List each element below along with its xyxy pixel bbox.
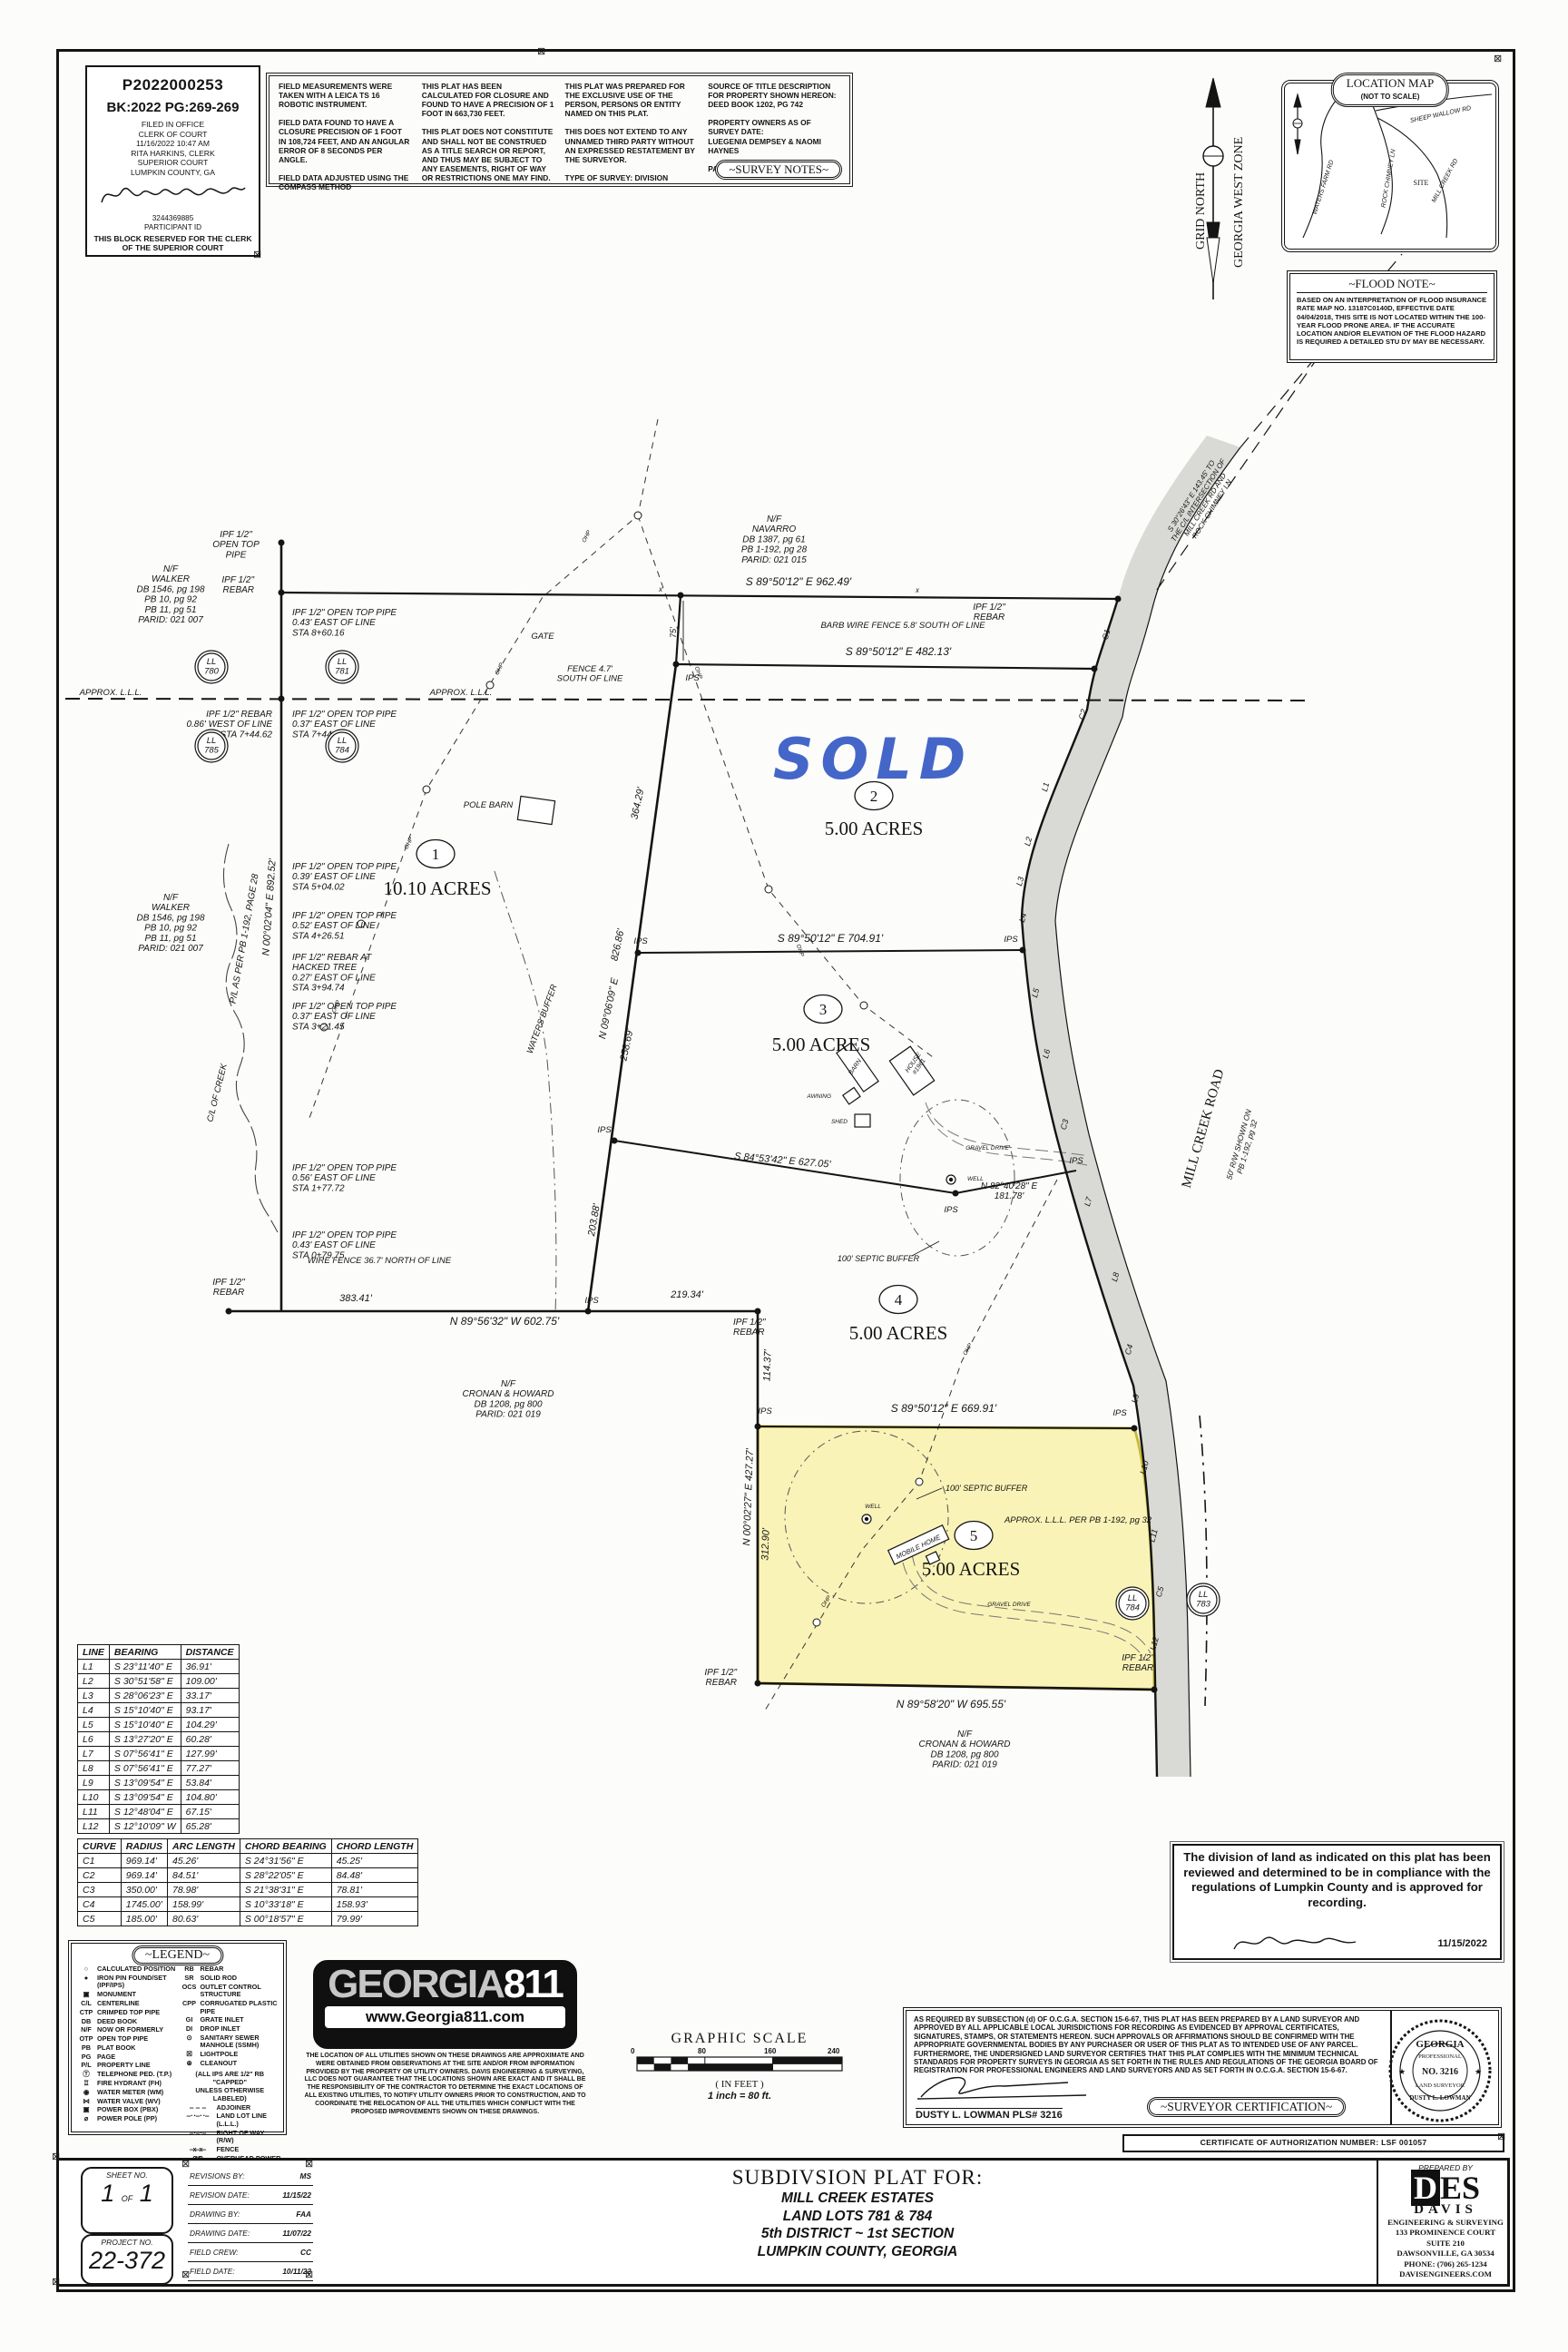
legend-item: OTPOPEN TOP PIPE [75, 2035, 179, 2043]
plat-label: N 89°56'32" W 602.75' [450, 1315, 560, 1328]
table-cell: L2 [78, 1674, 110, 1689]
lot-acreage: 5.00 ACRES [849, 1322, 948, 1344]
legend-label: ADJOINER [217, 2104, 251, 2112]
plat-label: IPF 1/2" OPEN TOP PIPE0.43' EAST OF LINE… [292, 608, 397, 638]
book-page: BK:2022 PG:269-269 [87, 100, 259, 115]
legend-label: GRATE INLET [201, 2016, 244, 2024]
plat-label: IPF 1/2" OPEN TOP PIPE0.56' EAST OF LINE… [292, 1163, 397, 1193]
plat-label: C/L OF CREEK [205, 1063, 230, 1123]
table-cell: 84.48' [331, 1868, 418, 1883]
locmap-road-label: ROCK CHIMNEY LN [1380, 148, 1396, 208]
plat-label: N 00°02'04" E 892.52' [260, 857, 279, 956]
table-cell: 127.99' [181, 1747, 239, 1761]
table-row: L1S 23°11'40" E36.91' [78, 1660, 240, 1674]
surveyor-signature [914, 2072, 1095, 2104]
plat-label: IPF 1/2"REBAR [733, 1318, 766, 1338]
legend-symbol: GI [179, 2016, 201, 2024]
legend-symbol: ⊙ [179, 2034, 201, 2050]
legend-item: —·—·—RIGHT OF WAY (R/W) [179, 2130, 282, 2145]
lot-number: 2 [870, 788, 878, 805]
plat-label: GATE [531, 632, 554, 642]
plat-label: FENCE 4.7'SOUTH OF LINE [557, 664, 623, 684]
filed-info: FILED IN OFFICE CLERK OF COURT 11/16/202… [87, 120, 259, 178]
locmap-road-label: MILL CREEK RD [1431, 158, 1459, 204]
table-cell: 80.63' [168, 1912, 240, 1926]
revision-label: FIELD DATE: [190, 2267, 235, 2276]
revision-row: REVISIONS BY:MS [188, 2167, 313, 2186]
legend-label: OUTLET CONTROL STRUCTURE [201, 1984, 261, 1999]
locmap-road-label: SHEEP WALLOW RD [1409, 105, 1471, 124]
legend-item: ◉WATER METER (WM) [75, 2089, 179, 2097]
legend-label: DROP INLET [201, 2025, 240, 2033]
legend-item: —··—··—LAND LOT LINE (L.L.L.) [179, 2112, 282, 2128]
plat-label: WELL [967, 1176, 984, 1182]
table-row: L2S 30°51'58" E109.00' [78, 1674, 240, 1689]
legend-symbol: ○ [75, 1965, 97, 1974]
table-cell: C5 [78, 1912, 122, 1926]
plat-label: N 89°58'20" W 695.55' [897, 1698, 1006, 1710]
participant-id: 3244369885 PARTICIPANT ID [87, 214, 259, 232]
plat-label: IPF 1/2"REBAR [704, 1668, 737, 1688]
title-block: SHEET NO. 1 OF 1 PROJECT NO. 22-372 REVI… [56, 2158, 1510, 2287]
legend-symbol: N/F [75, 2026, 97, 2034]
legend-note: (ALL IPS ARE 1/2" RB "CAPPED" UNLESS OTH… [179, 2070, 282, 2102]
surveyor-seal: ​ GEORGIA PROFESSIONAL NO. 3216 LAND SUR… [1386, 2016, 1494, 2125]
legend-symbol: ♖ [75, 2080, 97, 2088]
legend-left-column: ○CALCULATED POSITION●IRON PIN FOUND/SET … [75, 1965, 179, 2130]
firm-name: DAVIS [1378, 2203, 1513, 2217]
plat-label: N 82°40'28" E181.78' [981, 1181, 1038, 1201]
revision-label: DRAWING BY: [190, 2210, 240, 2219]
table-cell: 969.14' [121, 1854, 167, 1868]
plat-label: N 00°02'27" E 427.27' [741, 1447, 756, 1546]
legend-symbol: ⋈ [75, 2098, 97, 2106]
table-cell: 158.93' [331, 1897, 418, 1912]
sheet-total: 1 [140, 2180, 153, 2207]
plat-label: S 89°50'12" E 704.91' [778, 932, 884, 945]
plat-label: IPF 1/2"REBAR [973, 603, 1005, 622]
plat-label: N/FNAVARRODB 1387, pg 61PB 1-192, pg 28P… [741, 514, 808, 565]
legend-item: ▣MONUMENT [75, 1991, 179, 1999]
reserved-note: THIS BLOCK RESERVED FOR THE CLERK OF THE… [87, 234, 259, 252]
plat-label: APPROX. L.L.L. [429, 688, 493, 698]
graphic-scale: GRAPHIC SCALE 080160240 ( IN FEET ) 1 in… [626, 2031, 853, 2102]
svg-text:GEORGIA: GEORGIA [1416, 2039, 1464, 2050]
plat-title-line-3: 5th DISTRICT ~ 1st SECTION [567, 2225, 1148, 2243]
table-cell: L6 [78, 1732, 110, 1747]
legend-label: LAND LOT LINE (L.L.L.) [217, 2112, 282, 2128]
table-cell: L1 [78, 1660, 110, 1674]
table-cell: 65.28' [181, 1819, 239, 1834]
table-header: CHORD LENGTH [331, 1839, 418, 1854]
survey-notes-col-2: THIS PLAT HAS BEEN CALCULATED FOR CLOSUR… [416, 82, 560, 178]
plat-label: x [915, 586, 920, 594]
firm-address-line: PHONE: (706) 265-1234 [1378, 2259, 1513, 2269]
georgia811-number: 811 [504, 1962, 563, 2006]
approval-text: The division of land as indicated on thi… [1181, 1850, 1493, 1910]
plat-label: WIRE FENCE 36.7' NORTH OF LINE [308, 1256, 452, 1266]
revision-row: DRAWING DATE:11/07/22 [188, 2224, 313, 2243]
plat-label: IPS [1112, 1408, 1127, 1418]
plat-label: OHP [403, 836, 415, 850]
plat-label: 114.37' [761, 1348, 773, 1381]
graphic-scale-title: GRAPHIC SCALE [626, 2031, 853, 2047]
table-cell: 78.98' [168, 1883, 240, 1897]
table-cell: 185.00' [121, 1912, 167, 1926]
revision-row: FIELD DATE:10/11/22 [188, 2262, 313, 2281]
locmap-road-label: WATERS FARM RD [1312, 160, 1336, 216]
legend-label: WATER VALVE (WV) [97, 2098, 161, 2106]
firm-address-line: DAVISENGINEERS.COM [1378, 2269, 1513, 2279]
legend-item: ⊙SANITARY SEWER MANHOLE (SSMH) [179, 2034, 282, 2050]
clerk-signature [96, 179, 250, 210]
lot-number: 4 [895, 1291, 903, 1308]
plat-label: IPS [584, 1296, 599, 1306]
table-cell: C2 [78, 1868, 122, 1883]
registration-mark: ⊠ [1497, 2132, 1505, 2142]
table-row: C3350.00'78.98'S 21°38'31" E78.81' [78, 1883, 418, 1897]
plat-label: N/FWALKERDB 1546, pg 198PB 10, pg 92PB 1… [136, 564, 204, 625]
sheet-number-box: SHEET NO. 1 OF 1 [81, 2167, 173, 2234]
table-row: L10S 13°09'54" E104.80' [78, 1790, 240, 1805]
flood-note-title: ~FLOOD NOTE~ [1297, 277, 1487, 293]
plat-label: IPS [758, 1406, 772, 1416]
plat-label: IPS [1004, 935, 1018, 945]
legend-symbol: ▣ [75, 1991, 97, 1999]
plat-label: WELL [865, 1504, 881, 1510]
registration-mark: ⊠ [537, 47, 545, 57]
table-cell: S 10°33'18" E [240, 1897, 331, 1912]
table-header: BEARING [109, 1645, 181, 1660]
registration-mark: ⊠ [305, 2160, 313, 2170]
firm-address-line: ENGINEERING & SURVEYING [1378, 2218, 1513, 2228]
svg-text:PROFESSIONAL: PROFESSIONAL [1418, 2053, 1462, 2060]
survey-notes-stamp: ~SURVEY NOTES~ [715, 160, 842, 180]
revision-label: REVISION DATE: [190, 2190, 250, 2200]
legend-item: ♖FIRE HYDRANT (FH) [75, 2080, 179, 2088]
legend-symbol: PG [75, 2053, 97, 2062]
plat-label: N/FCRONAN & HOWARDDB 1208, pg 800PARID: … [463, 1379, 554, 1420]
table-cell: S 07°56'41" E [109, 1761, 181, 1776]
table-row: C1969.14'45.26'S 24°31'56" E45.25' [78, 1854, 418, 1868]
legend-title: ~LEGEND~ [132, 1945, 223, 1965]
legend-label: WATER METER (WM) [97, 2089, 163, 2097]
registration-mark: ⊠ [181, 2270, 190, 2280]
table-cell: 158.99' [168, 1897, 240, 1912]
legend-symbol: DI [179, 2025, 201, 2033]
table-cell: 77.27' [181, 1761, 239, 1776]
plat-label: POLE BARN [464, 800, 514, 810]
legend-item: RBREBAR [179, 1965, 282, 1974]
legend-item: ○CALCULATED POSITION [75, 1965, 179, 1974]
location-map-title-text: LOCATION MAP [1347, 76, 1434, 90]
table-cell: L9 [78, 1776, 110, 1790]
table-cell: S 13°09'54" E [109, 1776, 181, 1790]
table-cell: 60.28' [181, 1732, 239, 1747]
legend-item: ⊛CLEANOUT [179, 2060, 282, 2068]
legend-item: DBDEED BOOK [75, 2018, 179, 2026]
legend-label: REBAR [201, 1965, 224, 1974]
table-cell: S 23°11'40" E [109, 1660, 181, 1674]
svg-text:★: ★ [1398, 2067, 1406, 2076]
legend-symbol: ⌀ [75, 2115, 97, 2123]
table-row: C41745.00'158.99'S 10°33'18" E158.93' [78, 1897, 418, 1912]
table-cell: L4 [78, 1703, 110, 1718]
revision-row: FIELD CREW:CC [188, 2243, 313, 2262]
plat-label: IPF 1/2"OPEN TOPPIPE [212, 530, 260, 560]
grid-north-label: GRID NORTH [1194, 104, 1209, 286]
road-segment-tag: L2 [1023, 836, 1034, 847]
table-row: L3S 28°06'23" E33.17' [78, 1689, 240, 1703]
legend-label: PROPERTY LINE [97, 2062, 151, 2070]
table-row: L8S 07°56'41" E77.27' [78, 1761, 240, 1776]
registration-mark: ⊠ [1494, 54, 1502, 64]
lot-acreage: 5.00 ACRES [825, 818, 924, 839]
plat-label: IPF 1/2"REBAR [1122, 1653, 1154, 1673]
survey-notes-col-1: FIELD MEASUREMENTS WERE TAKEN WITH A LEI… [273, 82, 416, 178]
scale-tick: 240 [828, 2047, 839, 2055]
document-number: P2022000253 [87, 76, 259, 94]
legend-item: GIGRATE INLET [179, 2016, 282, 2024]
plat-sheet: N/FNAVARRODB 1387, pg 61PB 1-192, pg 28P… [0, 0, 1568, 2352]
location-map-subtitle: (NOT TO SCALE) [1361, 93, 1420, 101]
legend-item: ⌀POWER POLE (PP) [75, 2115, 179, 2123]
plat-label: GRAVEL DRIVE [987, 1602, 1031, 1608]
lot-acreage: 5.00 ACRES [772, 1034, 871, 1055]
scale-tick: 160 [764, 2047, 776, 2055]
table-row: L6S 13°27'20" E60.28' [78, 1732, 240, 1747]
plat-label: APPROX. L.L.L. [79, 688, 142, 698]
plat-label: P/L AS PER PB 1-192, PAGE 28 [229, 873, 261, 1004]
legend-label: NOW OR FORMERLY [97, 2026, 163, 2034]
plat-label: 258.69' [618, 1027, 636, 1063]
table-cell: 45.26' [168, 1854, 240, 1868]
plat-label: 100' SEPTIC BUFFER [838, 1254, 920, 1263]
road-segment-tag: L3 [1014, 876, 1025, 887]
table-cell: S 28°06'23" E [109, 1689, 181, 1703]
project-number: 22-372 [83, 2247, 171, 2274]
location-map-title: LOCATION MAP (NOT TO SCALE) [1331, 73, 1449, 107]
legend-item: CPPCORRUGATED PLASTIC PIPE [179, 2000, 282, 2015]
legend-label: IRON PIN FOUND/SET (IPF/IPS) [97, 1975, 167, 1990]
registration-mark: ⊠ [305, 2270, 313, 2280]
plat-label: N 09°06'09" E [597, 976, 621, 1040]
legend-symbol: SR [179, 1975, 201, 1983]
table-row: L4S 15°10'40" E93.17' [78, 1703, 240, 1718]
table-cell: C4 [78, 1897, 122, 1912]
plat-label: 364.29' [629, 786, 646, 820]
locmap-road-label: SITE [1414, 179, 1429, 187]
legend-item: C/LCENTERLINE [75, 2000, 179, 2008]
legend-item: PBPLAT BOOK [75, 2044, 179, 2053]
plat-label: S 89°50'12" E 482.13' [846, 645, 952, 658]
legend-symbol: P/L [75, 2062, 97, 2070]
table-row: L7S 07°56'41" E127.99' [78, 1747, 240, 1761]
revision-row: DRAWING BY:FAA [188, 2205, 313, 2224]
table-cell: L10 [78, 1790, 110, 1805]
legend-item: — — —ADJOINER [179, 2104, 282, 2112]
lot-number: 3 [819, 1001, 828, 1018]
table-cell: L7 [78, 1747, 110, 1761]
table-cell: L12 [78, 1819, 110, 1834]
legend-item: ⋈WATER VALVE (WV) [75, 2098, 179, 2106]
table-header: DISTANCE [181, 1645, 239, 1660]
legend-item: OCSOUTLET CONTROL STRUCTURE [179, 1984, 282, 1999]
revision-value: CC [300, 2248, 311, 2257]
legend-symbol: PB [75, 2044, 97, 2053]
legend-label: SOLID ROD [201, 1975, 238, 1983]
firm-logo-es: ES [1440, 2170, 1480, 2206]
table-cell: C3 [78, 1883, 122, 1897]
sheet-number-label: SHEET NO. [83, 2171, 171, 2180]
pole-barn [517, 796, 554, 824]
legend-label: CLEANOUT [201, 2060, 238, 2068]
registration-mark: ⊠ [253, 250, 261, 260]
legend-symbol: —x—x— [179, 2146, 217, 2154]
locmap-north-arrow [1293, 94, 1302, 154]
revisions-table: REVISIONS BY:MSREVISION DATE:11/15/22DRA… [188, 2167, 313, 2281]
plat-label: S 89°50'12" E 669.91' [891, 1402, 997, 1415]
prepared-by-block: PREPARED BY DES DAVIS ENGINEERING & SURV… [1377, 2161, 1513, 2284]
table-cell: S 12°48'04" E [109, 1805, 181, 1819]
plat-label: N/FWALKERDB 1546, pg 198PB 10, pg 92PB 1… [136, 893, 204, 954]
legend-symbol: CTP [75, 2009, 97, 2017]
revision-row: REVISION DATE:11/15/22 [188, 2186, 313, 2205]
table-header: RADIUS [121, 1839, 167, 1854]
legend-item: P/LPROPERTY LINE [75, 2062, 179, 2070]
legend-right-column: RBREBARSRSOLID RODOCSOUTLET CONTROL STRU… [179, 1965, 282, 2130]
approval-signature [1229, 1929, 1365, 1956]
plat-label: 219.34' [670, 1289, 704, 1300]
flood-note-text: BASED ON AN INTERPRETATION OF FLOOD INSU… [1297, 296, 1487, 347]
legend-label: OPEN TOP PIPE [97, 2035, 148, 2043]
surveyor-name: DUSTY L. LOWMAN PLS# 3216 [916, 2108, 1063, 2121]
revision-value: MS [300, 2171, 311, 2180]
legend-label: PAGE [97, 2053, 115, 2062]
plat-label: AWNING [806, 1093, 831, 1100]
legend-symbol: ◉ [75, 2089, 97, 2097]
table-cell: S 15°10'40" E [109, 1718, 181, 1732]
road-segment-tag: L1 [1040, 781, 1051, 792]
table-cell: 67.15' [181, 1805, 239, 1819]
surveyor-certification: AS REQUIRED BY SUBSECTION (d) OF O.C.G.A… [903, 2007, 1502, 2128]
project-number-box: PROJECT NO. 22-372 [81, 2234, 173, 2285]
revision-value: 11/07/22 [282, 2229, 311, 2238]
georgia-west-zone-label: GEORGIA WEST ZONE [1232, 86, 1247, 304]
firm-address-line: 133 PROMINENCE COURT [1378, 2228, 1513, 2238]
table-cell: L11 [78, 1805, 110, 1819]
septic-buffer-lot3 [900, 1100, 1014, 1256]
sheet-number: 1 [101, 2180, 114, 2207]
table-row: L5S 15°10'40" E104.29' [78, 1718, 240, 1732]
plat-label: OHP [494, 661, 505, 676]
table-cell: S 24°31'56" E [240, 1854, 331, 1868]
legend-symbol: ● [75, 1975, 97, 1990]
table-header: CURVE [78, 1839, 122, 1854]
plat-label: 383.41' [339, 1293, 373, 1304]
table-cell: 104.29' [181, 1718, 239, 1732]
plat-title: SUBDIVSION PLAT FOR: MILL CREEK ESTATES … [567, 2166, 1148, 2260]
legend-symbol: —·—·— [179, 2130, 217, 2145]
table-header: LINE [78, 1645, 110, 1660]
plat-label: N/FCRONAN & HOWARDDB 1208, pg 800PARID: … [919, 1730, 1011, 1770]
table-cell: L5 [78, 1718, 110, 1732]
table-cell: S 13°09'54" E [109, 1790, 181, 1805]
plat-label: BARB WIRE FENCE 5.8' SOUTH OF LINE [820, 621, 985, 631]
legend-symbol: Ⓣ [75, 2071, 97, 2079]
legend-symbol: C/L [75, 2000, 97, 2008]
plat-label: IPF 1/2" OPEN TOP PIPE0.52' EAST OF LINE… [292, 911, 397, 941]
legend-label: PLAT BOOK [97, 2044, 135, 2053]
revision-label: REVISIONS BY: [190, 2171, 245, 2180]
survey-notes-col-3: THIS PLAT WAS PREPARED FOR THE EXCLUSIVE… [560, 82, 703, 178]
plat-label: IPS [633, 936, 648, 946]
table-cell: S 21°38'31" E [240, 1883, 331, 1897]
legend-label: DEED BOOK [97, 2018, 137, 2026]
georgia811-logo: GEORGIA811 www.Georgia811.com [313, 1960, 577, 2049]
plat-label: IPS [597, 1125, 612, 1135]
svg-text:DUSTY L. LOWMAN: DUSTY L. LOWMAN [1409, 2094, 1470, 2102]
table-cell: 1745.00' [121, 1897, 167, 1912]
legend-symbol: — — — [179, 2104, 217, 2112]
shed [855, 1114, 870, 1127]
table-header: CHORD BEARING [240, 1839, 331, 1854]
table-cell: S 15°10'40" E [109, 1703, 181, 1718]
legend-label: CORRUGATED PLASTIC PIPE [201, 2000, 278, 2015]
table-cell: S 00°18'57" E [240, 1912, 331, 1926]
firm-address-line: SUITE 210 [1378, 2239, 1513, 2249]
table-cell: S 12°10'09" W [109, 1819, 181, 1834]
legend-item: DIDROP INLET [179, 2025, 282, 2033]
location-map-canvas: WATERS FARM RDROCK CHIMNEY LNSHEEP WALLO… [1285, 83, 1495, 249]
table-cell: S 30°51'58" E [109, 1674, 181, 1689]
lot-number: 1 [432, 846, 440, 863]
awning [843, 1087, 860, 1103]
lot-acreage: 5.00 ACRES [922, 1558, 1021, 1580]
legend-item: CTPCRIMPED TOP PIPE [75, 2009, 179, 2017]
legend-item: N/FNOW OR FORMERLY [75, 2026, 179, 2034]
legend-symbol: OCS [179, 1984, 201, 1999]
legend-symbol: ▣ [75, 2106, 97, 2114]
legend-item: ●IRON PIN FOUND/SET (IPF/IPS) [75, 1975, 179, 1990]
graphic-scale-units: ( IN FEET ) [626, 2079, 853, 2090]
table-cell: 53.84' [181, 1776, 239, 1790]
table-row: L9S 13°09'54" E53.84' [78, 1776, 240, 1790]
legend-label: RIGHT OF WAY (R/W) [217, 2130, 282, 2145]
plat-label: IPS [1069, 1156, 1083, 1166]
plat-label: APPROX. L.L.L. PER PB 1-192, pg 32 [1004, 1515, 1152, 1525]
table-cell: 93.17' [181, 1703, 239, 1718]
plat-label: 100' SEPTIC BUFFER [946, 1484, 1028, 1493]
land-lot-line-2 [1200, 1416, 1207, 1706]
legend-label: SANITARY SEWER MANHOLE (SSMH) [201, 2034, 260, 2050]
legend-label: POWER BOX (PBX) [97, 2106, 158, 2114]
legend-symbol: —··—··— [179, 2112, 217, 2128]
flood-note: ~FLOOD NOTE~ BASED ON AN INTERPRETATION … [1287, 270, 1497, 363]
legend-item: ▣POWER BOX (PBX) [75, 2106, 179, 2114]
lot-number: 5 [970, 1527, 978, 1544]
table-cell: C1 [78, 1854, 122, 1868]
curve-table: CURVERADIUSARC LENGTHCHORD BEARINGCHORD … [77, 1838, 418, 1926]
table-cell: S 07°56'41" E [109, 1747, 181, 1761]
firm-address-line: DAWSONVILLE, GA 30534 [1378, 2249, 1513, 2259]
plat-label: IPF 1/2" OPEN TOP PIPE0.39' EAST OF LINE… [292, 862, 397, 892]
legend-label: CRIMPED TOP PIPE [97, 2009, 160, 2017]
table-cell: S 13°27'20" E [109, 1732, 181, 1747]
plat-title-line-2: LAND LOTS 781 & 784 [567, 2208, 1148, 2226]
project-number-label: PROJECT NO. [83, 2238, 171, 2247]
svg-text:NO. 3216: NO. 3216 [1422, 2067, 1458, 2077]
